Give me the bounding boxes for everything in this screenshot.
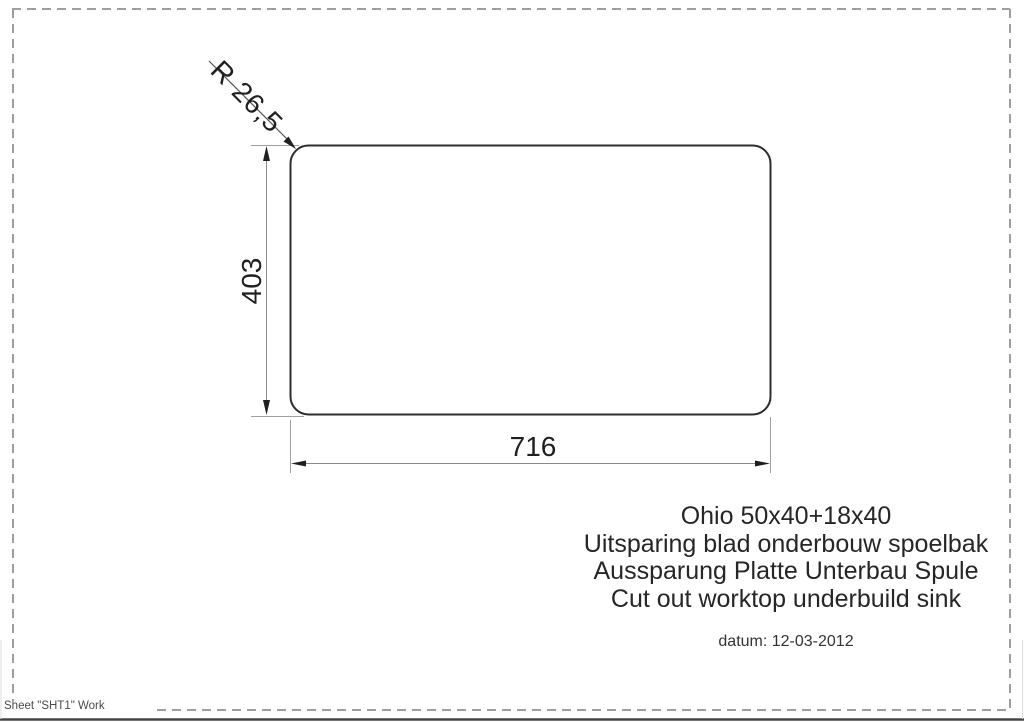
width-dimension-label: 716: [510, 431, 557, 462]
title-line-german: Aussparung Platte Unterbau Spule: [556, 558, 1016, 586]
extension-lines: [251, 146, 771, 474]
arrow-height-bottom: [263, 400, 270, 415]
arrow-height-top: [263, 146, 270, 161]
title-line-model: Ohio 50x40+18x40: [556, 503, 1016, 531]
title-line-dutch: Uitsparing blad onderbouw spoelbak: [556, 531, 1016, 559]
sheet-name-label: Sheet "SHT1" Work: [4, 700, 109, 712]
radius-dimension-label: R 26,5: [205, 54, 289, 138]
drawing-sheet: 403 716 R 26,5 Ohio 50x40+18x40 Uitspari…: [0, 0, 1024, 722]
title-block: Ohio 50x40+18x40 Uitsparing blad onderbo…: [556, 503, 1016, 613]
date-label: datum: 12-03-2012: [556, 633, 1016, 651]
arrow-radius-leader: [284, 137, 297, 150]
arrow-width-left: [291, 461, 306, 467]
cutout-drawing: 403 716 R 26,5: [0, 0, 1024, 722]
arrow-width-right: [755, 461, 770, 467]
height-dimension-label: 403: [236, 258, 267, 305]
dimension-lines: [267, 148, 769, 464]
dimension-arrowheads: [263, 137, 770, 467]
cutout-outline: [291, 146, 771, 415]
title-line-english: Cut out worktop underbuild sink: [556, 586, 1016, 614]
